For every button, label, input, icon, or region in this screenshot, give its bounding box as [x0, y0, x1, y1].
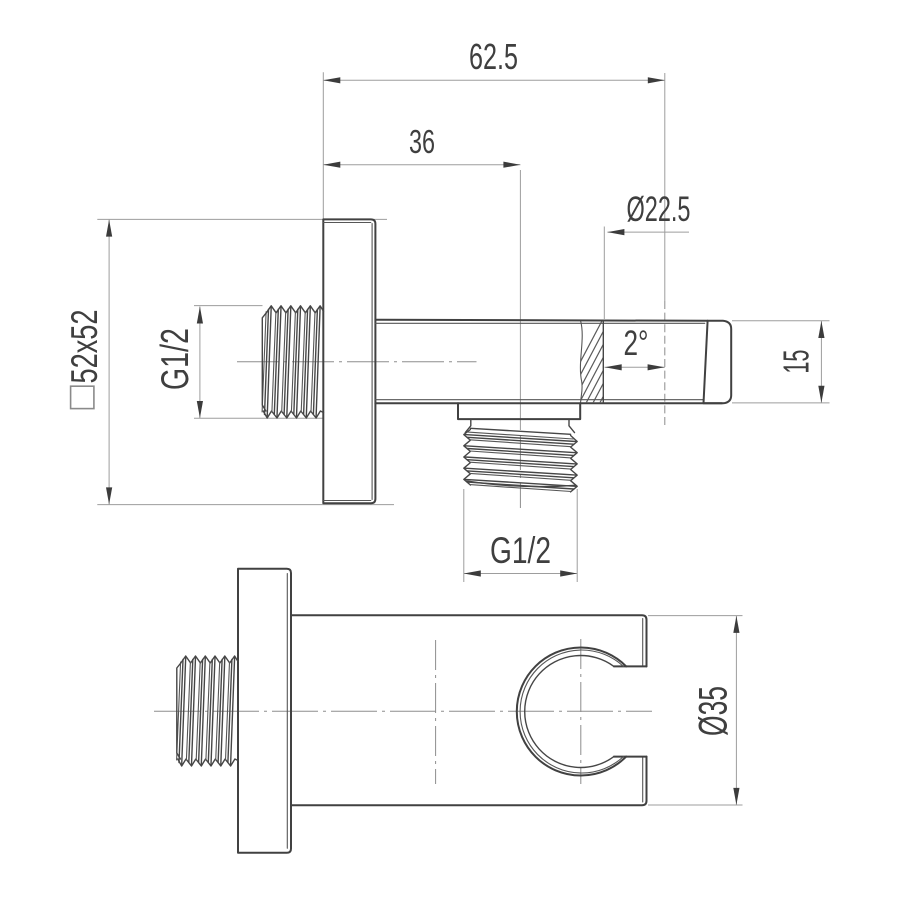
svg-text:Ø22.5: Ø22.5 — [627, 190, 691, 229]
svg-text:62.5: 62.5 — [469, 36, 518, 77]
svg-text:36: 36 — [409, 123, 435, 160]
svg-text:G1/2: G1/2 — [154, 328, 197, 390]
svg-text:52x52: 52x52 — [64, 310, 105, 384]
svg-text:2°: 2° — [624, 324, 649, 363]
svg-text:G1/2: G1/2 — [490, 530, 551, 571]
svg-text:15: 15 — [776, 350, 817, 374]
svg-text:Ø35: Ø35 — [692, 686, 736, 736]
